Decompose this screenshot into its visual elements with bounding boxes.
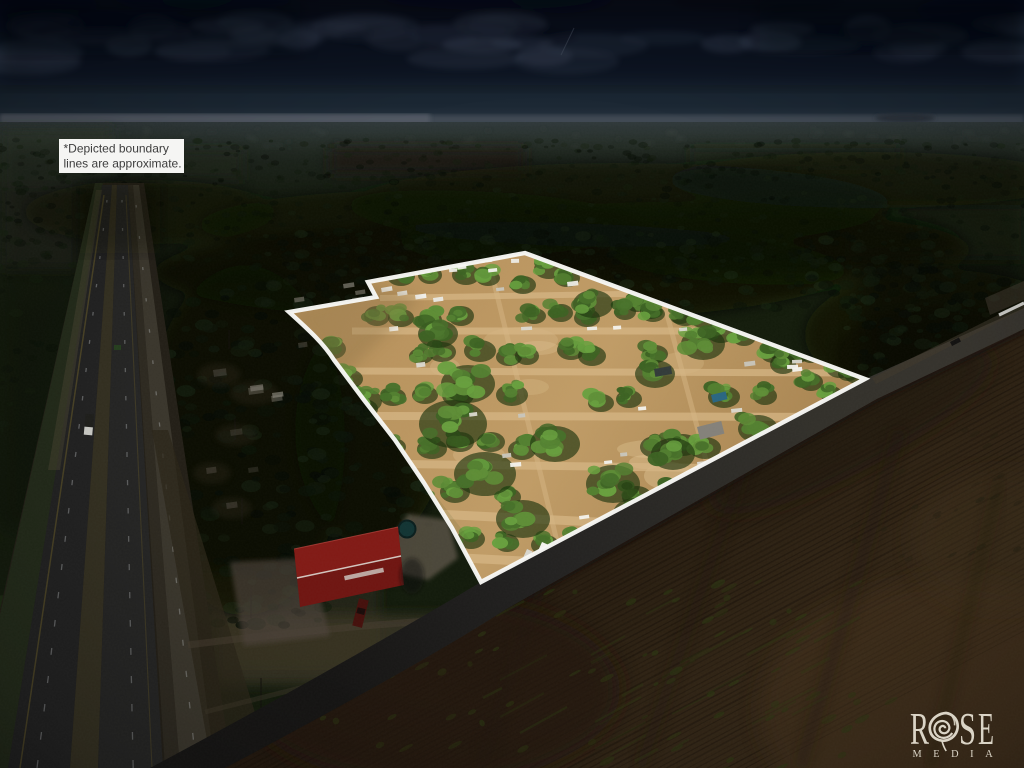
svg-text:R: R — [910, 704, 929, 754]
svg-text:lines are approximate.: lines are approximate. — [64, 157, 182, 171]
svg-text:S: S — [959, 704, 976, 754]
svg-text:*Depicted boundary: *Depicted boundary — [64, 142, 169, 156]
svg-text:E: E — [978, 704, 994, 754]
svg-text:MEDIA: MEDIA — [913, 749, 1005, 760]
